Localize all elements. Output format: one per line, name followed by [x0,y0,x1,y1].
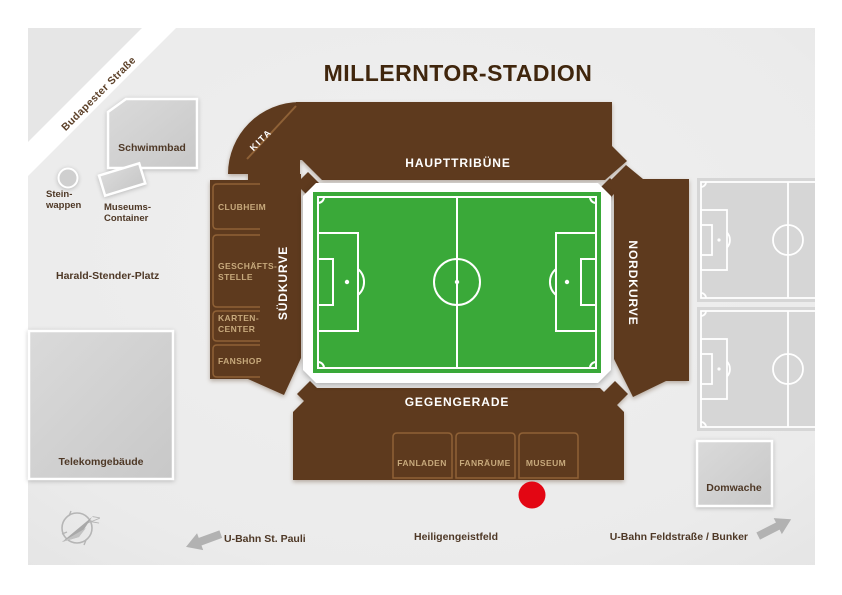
heiligengeistfeld-label: Heiligengeistfeld [414,531,498,543]
facility-clubheim-label: CLUBHEIM [218,202,266,212]
stadium-map: Budapester Straße Schwimmbad Stein- wapp… [0,0,842,595]
facility-fanshop-label: FANSHOP [218,356,262,366]
red-dot-marker [519,482,546,509]
training-pitch-2 [697,307,818,431]
stand-label-gegengerade: GEGENGERADE [405,395,510,409]
ubahn-east-label: U-Bahn Feldstraße / Bunker [610,531,748,543]
stand-label-suedkurve: SÜDKURVE [275,246,290,320]
training-pitch-1 [697,178,818,302]
facility-fanraeume-label: FANRÄUME [459,458,510,468]
facility-kartencenter-label: KARTEN- CENTER [218,313,262,334]
telekom-label: Telekomgebäude [59,456,144,468]
stand-label-haupttribuene: HAUPTTRIBÜNE [405,155,510,170]
page-title: MILLERNTOR-STADION [324,60,593,86]
stein-wappen-monument [59,169,78,188]
facility-museum-label: MUSEUM [526,458,566,468]
building-domwache [697,441,772,506]
facility-fanladen-label: FANLADEN [397,458,446,468]
stadium-map-page: Budapester Straße Schwimmbad Stein- wapp… [0,0,842,595]
harald-stender-platz-label: Harald-Stender-Platz [56,270,159,282]
stand-label-nordkurve: NORDKURVE [626,240,640,325]
museums-container-label: Museums- Container [104,202,154,224]
main-pitch [303,183,611,383]
schwimmbad-label: Schwimmbad [118,142,186,154]
stand-nordkurve [609,165,689,397]
domwache-label: Domwache [706,482,762,494]
ubahn-west-label: U-Bahn St. Pauli [224,533,306,545]
building-schwimmbad [108,99,197,168]
